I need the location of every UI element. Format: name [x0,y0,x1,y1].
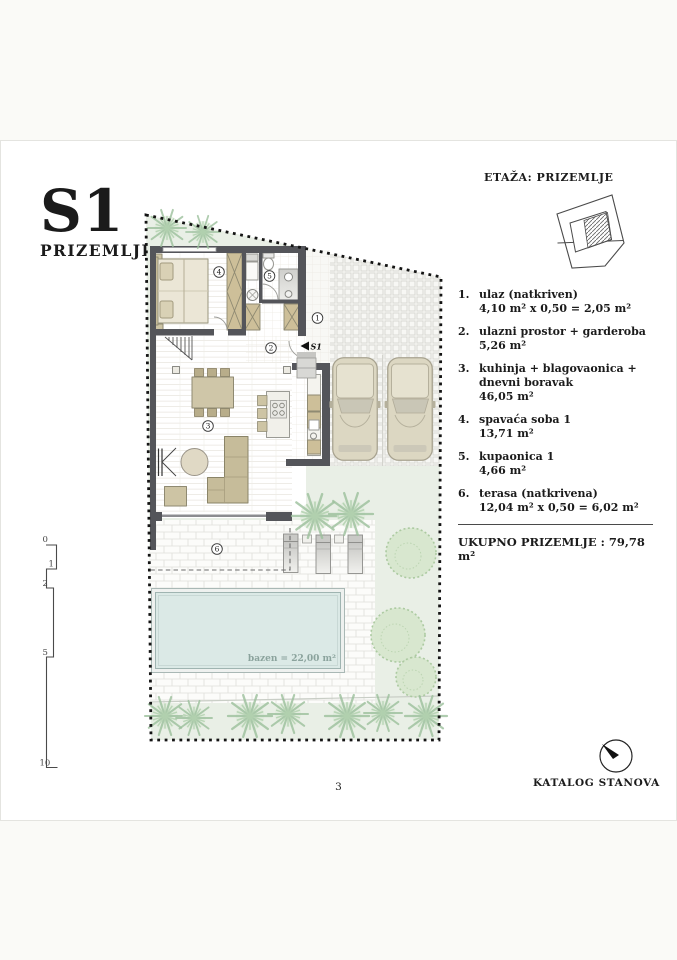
entrance-unit-label: S1 [311,342,322,352]
sun-loungers [284,534,363,574]
pillow [160,301,173,318]
cooktop [271,401,287,419]
washbasin [285,273,293,281]
terrace-window [162,515,266,518]
pillow [160,263,173,280]
counter-cabinet [308,440,321,454]
shower-drain [285,291,292,298]
scale-label-10: 10 [40,759,51,769]
car [330,358,381,461]
room-marker-5: 5 [267,272,272,281]
side-table [303,535,312,543]
counter-appliance [309,420,319,430]
bar-stools [258,396,268,432]
parked-cars [330,355,436,466]
toilet [264,258,274,270]
room-marker-1: 1 [315,314,320,323]
entry-step [297,352,316,358]
toilet-tank [263,253,274,258]
floor-key-diagram [557,195,624,268]
scale-label-1: 1 [49,560,54,570]
side-table [335,535,344,543]
room-marker-3: 3 [206,422,211,431]
room-marker-6: 6 [215,545,220,554]
north-compass-icon [600,740,632,772]
upper-cabinet [246,254,258,261]
scale-label-0: 0 [43,535,48,545]
page-number: 3 [0,781,677,793]
room-marker-2: 2 [269,344,274,353]
pool-label: bazen = 22,00 m² [248,654,336,664]
floor-plan-drawing: bazen = 22,00 m² [0,140,677,820]
counter-cabinet [308,395,321,411]
dining-table [192,377,234,408]
round-pouf [181,449,208,476]
catalog-page: S1 PRIZEMLJE ETAŽA: PRIZEMLJE 1. ulaz (n… [0,0,677,960]
car [385,358,436,461]
column [284,367,291,374]
column [173,367,180,374]
scale-label-5: 5 [43,648,48,658]
fridge [246,262,258,280]
scale-label-2: 2 [43,579,48,589]
room-marker-4: 4 [217,268,222,277]
square-pouf [165,487,187,507]
pool: bazen = 22,00 m² [152,589,345,673]
scale-bar: 0 1 2 5 10 [40,535,58,769]
